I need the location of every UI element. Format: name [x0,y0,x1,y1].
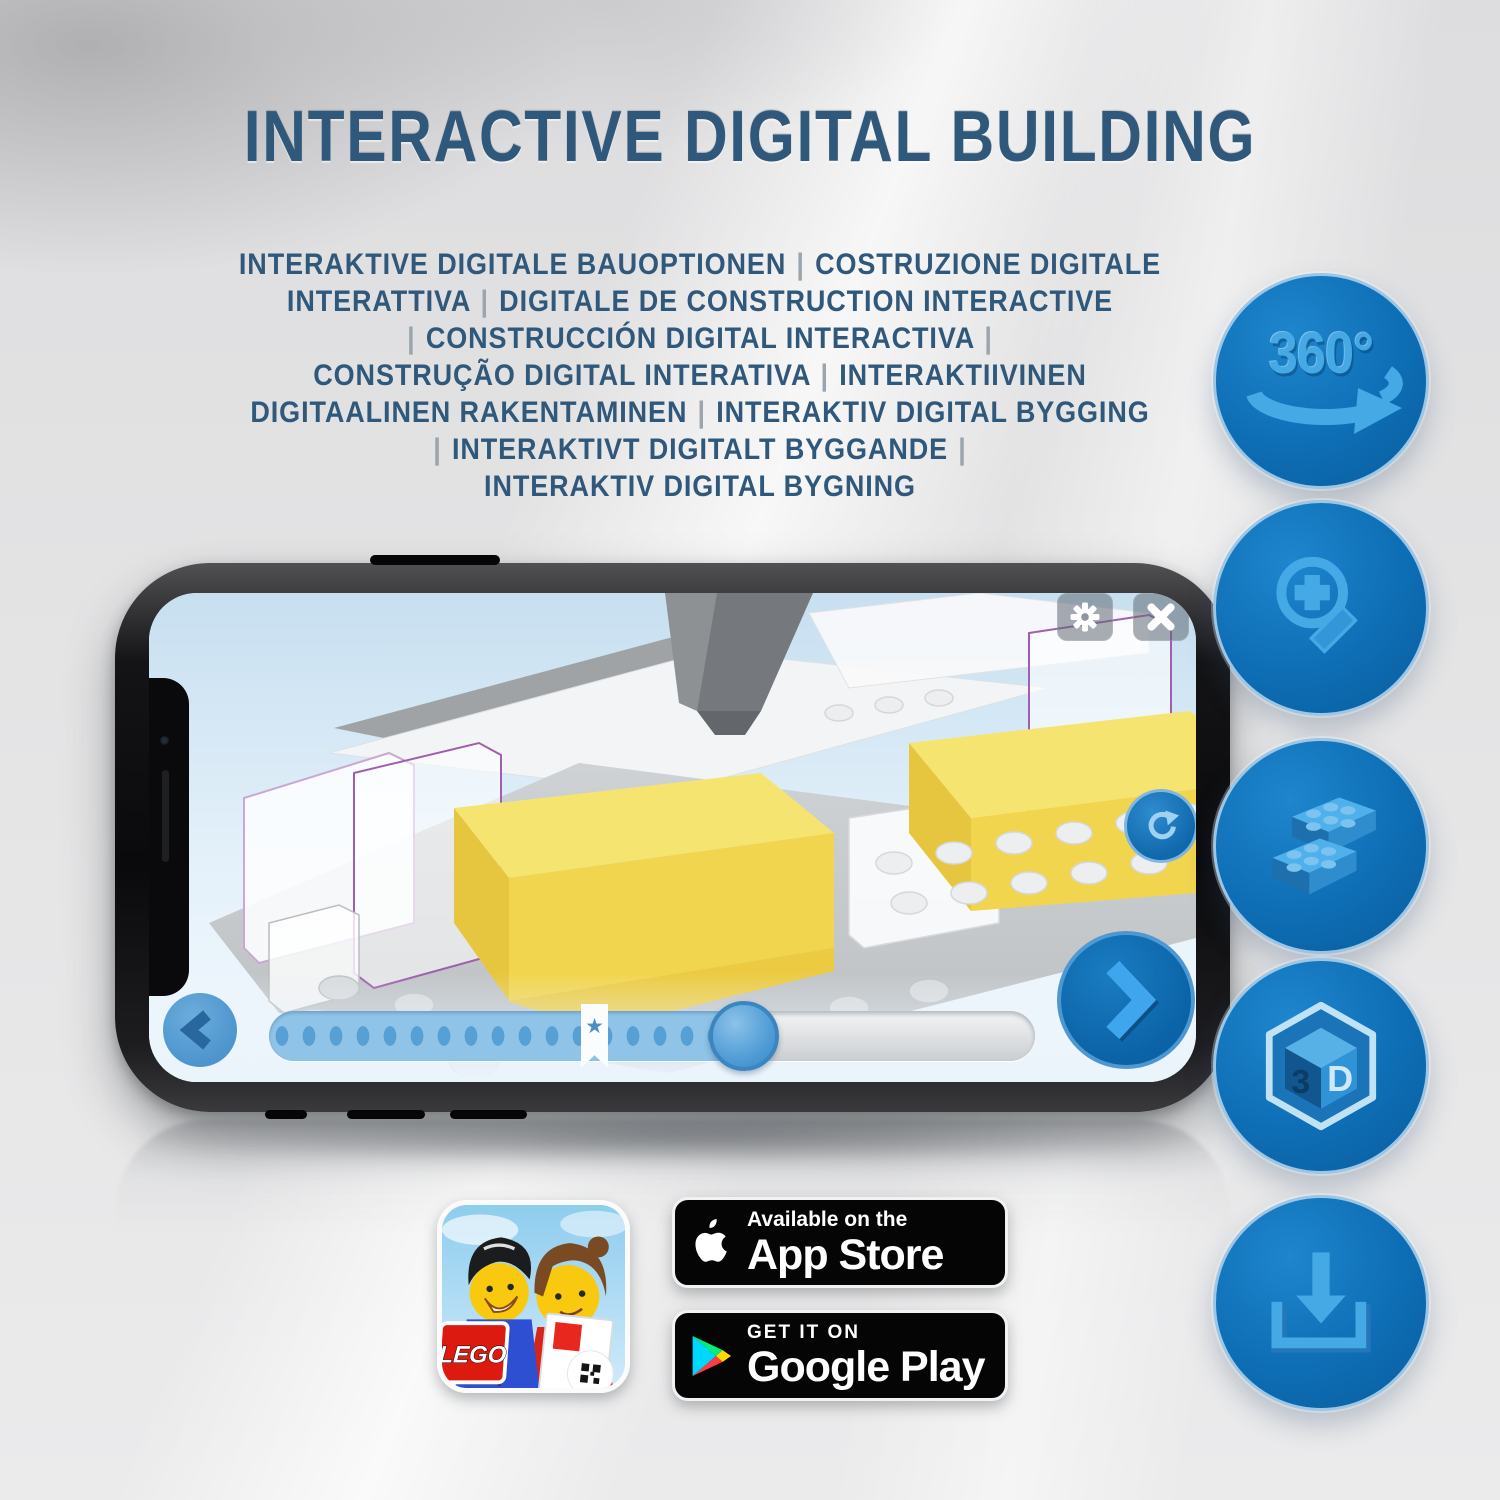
lego-app-icon[interactable]: LEGO [437,1200,630,1393]
3d-cube-face-3: 3 [1291,1063,1310,1101]
subtitle-line: | INTERAKTIVT DIGITALT BYGGANDE | [133,431,1267,468]
360-rotation-icon: 360° [1227,320,1416,387]
app-store-name: App Store [747,1234,943,1277]
chevron-left-icon [163,993,237,1067]
app-store-tagline: Available on the [747,1209,943,1230]
3d-cube-face-d: D [1327,1058,1353,1099]
google-play-icon [675,1328,747,1384]
phone-notch [149,678,189,996]
progress-fill [269,1011,747,1061]
volume-button [450,1110,527,1119]
lego-3d-model [149,593,1196,1082]
close-icon [1145,601,1177,633]
subtitle-line: CONSTRUÇÃO DIGITAL INTERATIVA | INTERAKT… [133,357,1267,394]
app-store-badge[interactable]: Available on the App Store [672,1197,1008,1288]
volume-button [347,1110,425,1119]
lego-logo: LEGO [442,1341,508,1368]
feature-360-badge: 360° [1213,273,1429,489]
subtitle-line: INTERAKTIVE DIGITALE BAUOPTIONEN | COSTR… [133,246,1267,283]
subtitle-block: INTERAKTIVE DIGITALE BAUOPTIONEN | COSTR… [133,246,1267,505]
apple-icon [675,1214,747,1272]
rotate-icon [1138,803,1184,849]
google-play-name: Google Play [747,1346,985,1389]
gear-icon [1068,600,1102,634]
poster: INTERACTIVE DIGITAL BUILDING INTERAKTIVE… [0,0,1500,1500]
close-button[interactable] [1133,593,1189,641]
power-button [370,555,500,565]
3d-cube-icon: 3 D [1249,994,1393,1138]
camera-icon [160,736,169,745]
build-progress-slider[interactable]: ★ [269,1011,1035,1061]
google-play-badge[interactable]: GET IT ON Google Play [672,1310,1008,1401]
feature-download-badge [1213,1195,1429,1411]
next-step-button[interactable] [1057,931,1195,1069]
rotate-model-button[interactable] [1124,789,1196,863]
settings-button[interactable] [1057,593,1113,641]
chevron-right-icon [1061,931,1191,1069]
subtitle-line: DIGITAALINEN RAKENTAMINEN | INTERAKTIV D… [133,394,1267,431]
google-play-tagline: GET IT ON [747,1323,985,1342]
feature-zoom-badge [1213,500,1429,716]
speaker-slot [162,770,169,862]
app-screen: ★ [149,593,1196,1082]
lego-app-icon-art: LEGO [442,1205,625,1388]
side-button [265,1110,307,1119]
previous-step-button[interactable] [163,993,237,1067]
subtitle-line: INTERATTIVA | DIGITALE DE CONSTRUCTION I… [133,283,1267,320]
download-icon [1251,1233,1391,1373]
feature-bricks-badge [1213,738,1429,954]
building-bricks-icon [1251,776,1391,916]
page-title: INTERACTIVE DIGITAL BUILDING [120,96,1380,178]
subtitle-line: INTERAKTIV DIGITAL BYGNING [133,468,1267,505]
zoom-in-icon [1255,542,1387,674]
feature-3d-badge: 3 D [1213,958,1429,1174]
progress-handle[interactable] [709,1001,779,1071]
subtitle-line: | CONSTRUCCIÓN DIGITAL INTERACTIVA | [133,320,1267,357]
phone-frame: ★ [115,563,1230,1112]
